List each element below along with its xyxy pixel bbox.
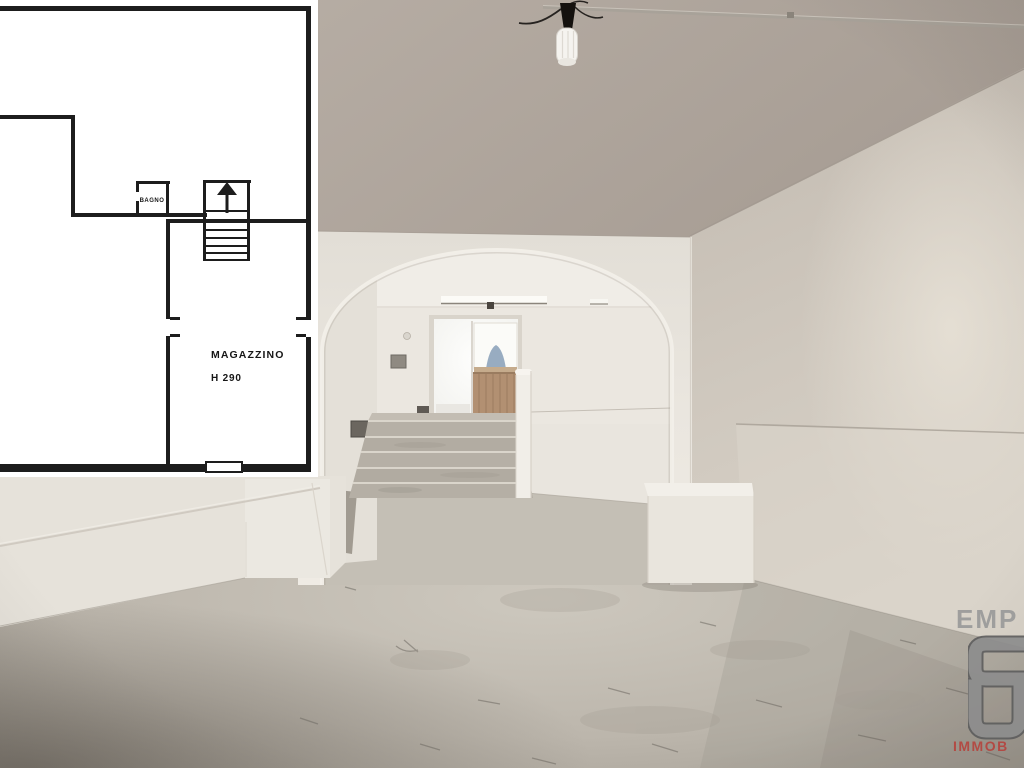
watermark-name: EMP <box>956 604 1018 635</box>
plan-paper <box>0 0 318 477</box>
real-estate-photo: BAGNO MAGAZZINO H 290 EMP IMMOB <box>0 0 1024 768</box>
plan-label-height: H 290 <box>211 373 242 384</box>
plan-label-storage: MAGAZZINO <box>211 349 284 361</box>
watermark-monogram <box>968 634 1024 742</box>
watermark-logo: EMP IMMOB <box>948 604 1024 766</box>
floorplan-overlay: BAGNO MAGAZZINO H 290 <box>0 0 318 477</box>
plan-label-bathroom: BAGNO <box>140 198 165 204</box>
plan-window-mark <box>206 462 242 472</box>
floorplan-drawing: BAGNO MAGAZZINO H 290 <box>0 0 318 477</box>
watermark-tagline: IMMOB <box>953 738 1009 754</box>
